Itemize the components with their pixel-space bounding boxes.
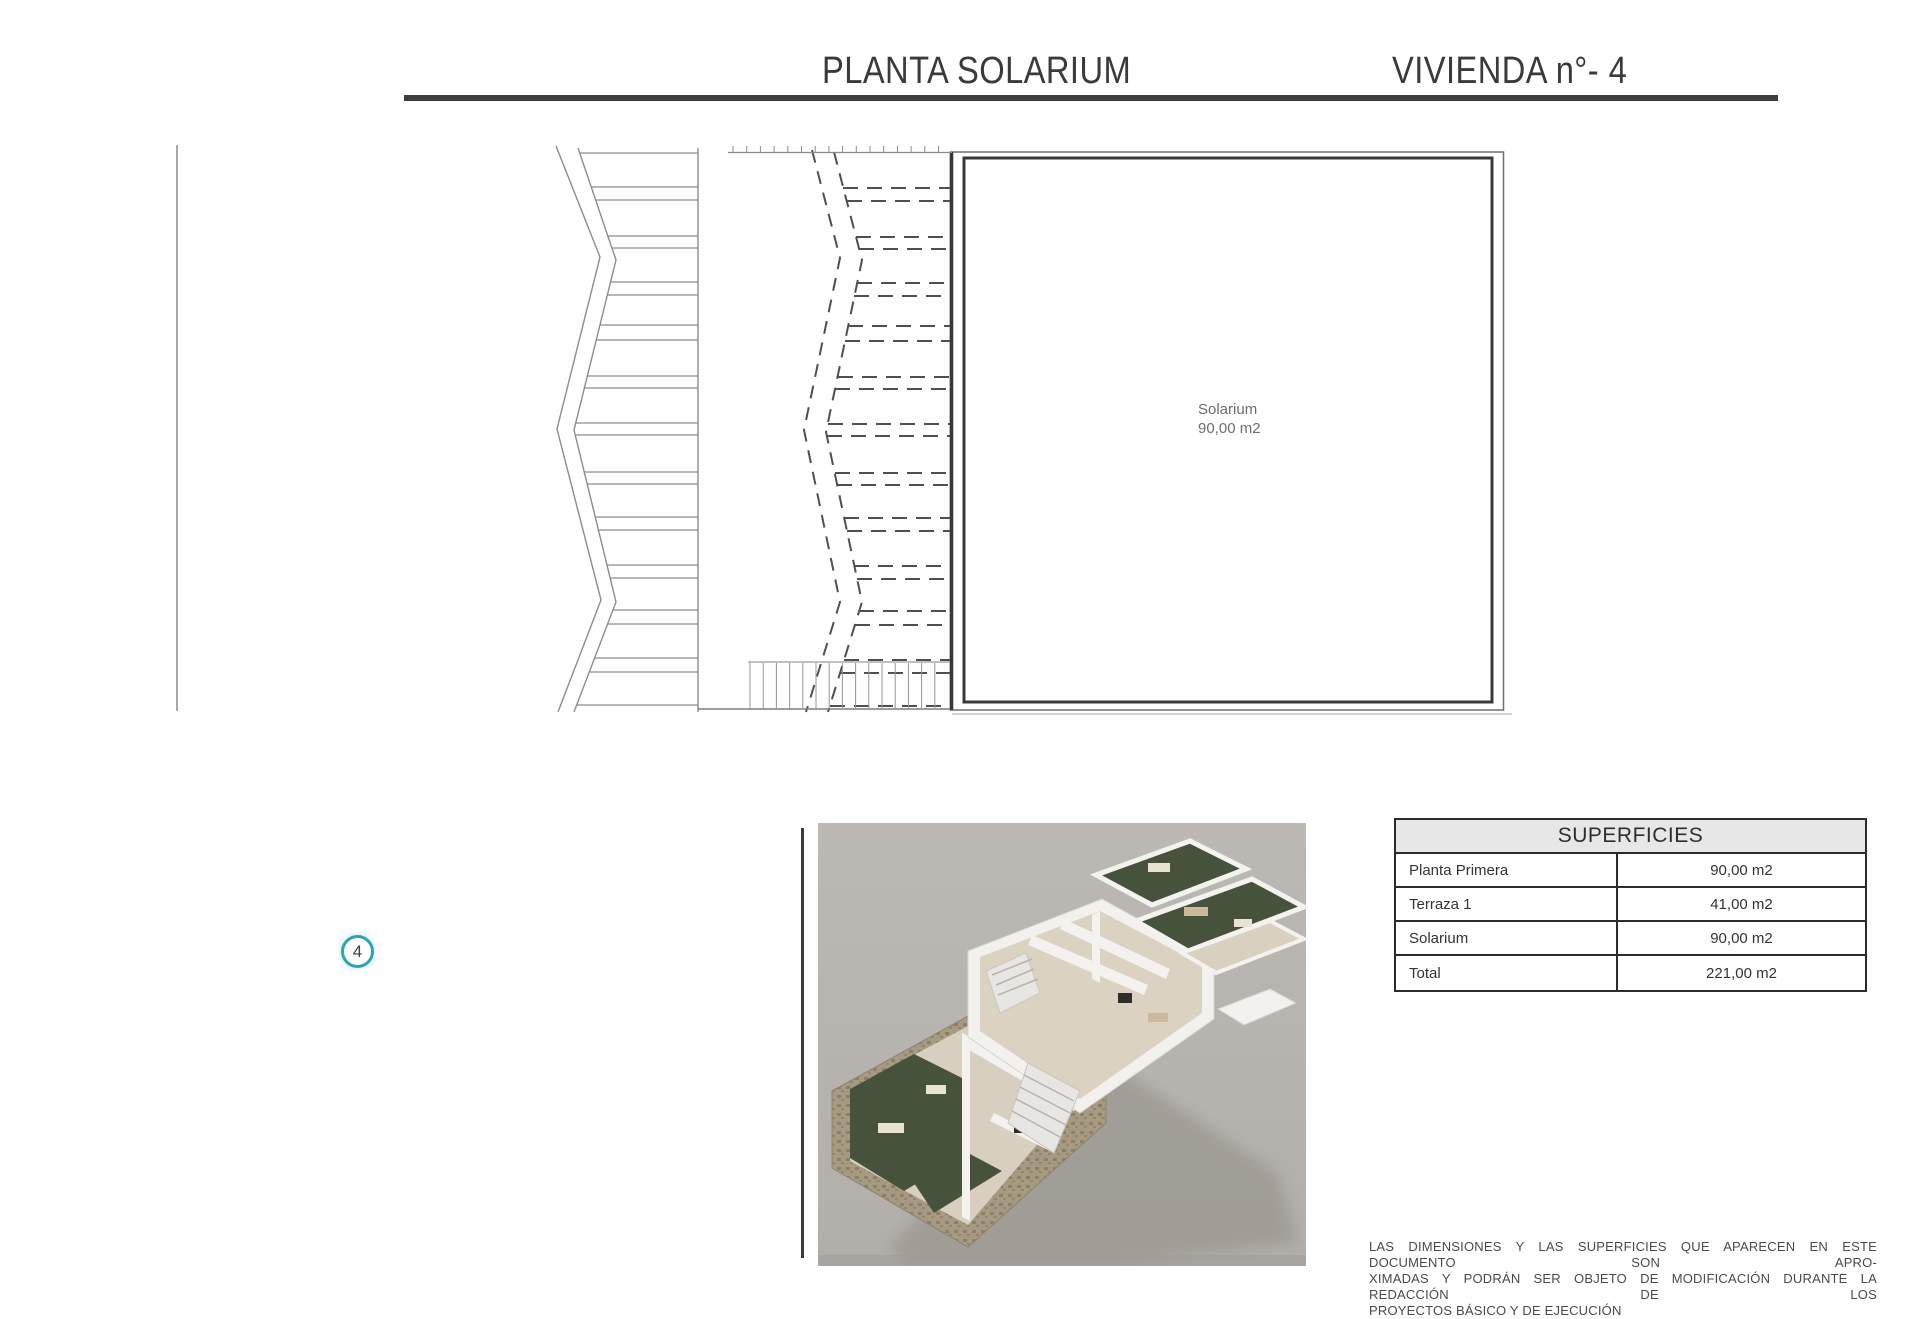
row-label: Total bbox=[1396, 956, 1618, 990]
row-label: Solarium bbox=[1396, 922, 1618, 954]
row-label: Terraza 1 bbox=[1396, 888, 1618, 920]
disclaimer-line: LAS DIMENSIONES Y LAS SUPERFICIES QUE AP… bbox=[1369, 1239, 1877, 1271]
room-label: Solarium 90,00 m2 bbox=[1198, 400, 1261, 438]
superficies-table-title: SUPERFICIES bbox=[1396, 820, 1865, 854]
left-guide-line bbox=[176, 145, 178, 711]
solarium-floor-plan bbox=[0, 0, 1920, 760]
row-value: 221,00 m2 bbox=[1618, 956, 1865, 990]
page-title: PLANTA SOLARIUM bbox=[822, 50, 1131, 93]
superficies-title-text: SUPERFICIES bbox=[1558, 824, 1704, 848]
unit-number-badge: 4 bbox=[341, 935, 374, 968]
unit-number: 4 bbox=[353, 942, 362, 962]
row-value: 41,00 m2 bbox=[1618, 888, 1865, 920]
render-divider-line bbox=[801, 828, 804, 1258]
legal-disclaimer: LAS DIMENSIONES Y LAS SUPERFICIES QUE AP… bbox=[1369, 1239, 1877, 1319]
row-label: Planta Primera bbox=[1396, 854, 1618, 886]
table-row: Terraza 1 41,00 m2 bbox=[1396, 888, 1865, 922]
table-row: Planta Primera 90,00 m2 bbox=[1396, 854, 1865, 888]
header-rule bbox=[404, 95, 1778, 101]
row-value: 90,00 m2 bbox=[1618, 922, 1865, 954]
table-row: Solarium 90,00 m2 bbox=[1396, 922, 1865, 956]
row-value: 90,00 m2 bbox=[1618, 854, 1865, 886]
dwelling-number: VIVIENDA n°- 4 bbox=[1392, 50, 1627, 93]
table-row: Total 221,00 m2 bbox=[1396, 956, 1865, 990]
disclaimer-line: XIMADAS Y PODRÁN SER OBJETO DE MODIFICAC… bbox=[1369, 1271, 1877, 1303]
disclaimer-line: PROYECTOS BÁSICO Y DE EJECUCIÓN bbox=[1369, 1303, 1877, 1319]
building-3d-render bbox=[818, 823, 1306, 1266]
room-name: Solarium bbox=[1198, 400, 1261, 419]
building-3d-render-image bbox=[818, 823, 1306, 1266]
superficies-table: SUPERFICIES Planta Primera 90,00 m2 Terr… bbox=[1394, 818, 1867, 992]
room-area: 90,00 m2 bbox=[1198, 419, 1261, 438]
